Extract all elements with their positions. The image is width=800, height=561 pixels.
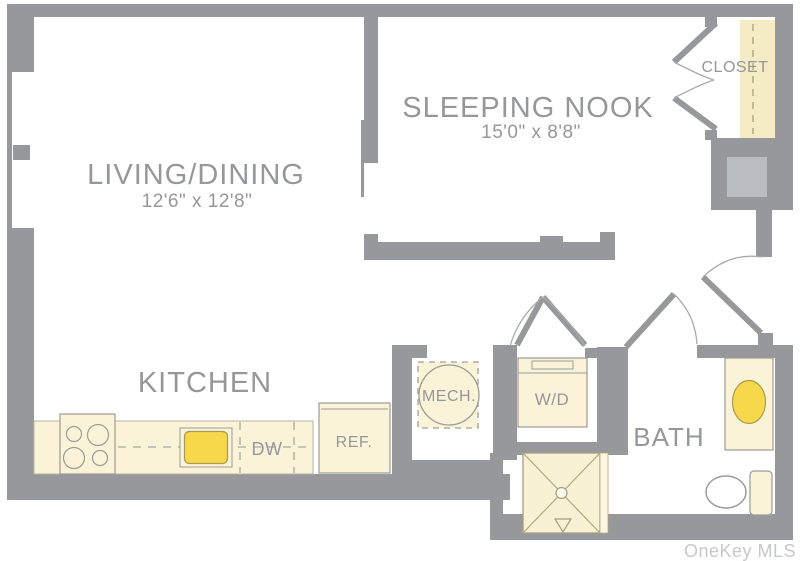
window-mullion <box>13 145 30 160</box>
wall-entry-upper-jamb <box>756 210 772 257</box>
toilet-tank <box>750 471 772 515</box>
toilet-bowl <box>706 476 746 508</box>
label-mech: MECH. <box>422 388 476 405</box>
wall-entry-lower-jamb <box>758 333 773 347</box>
label-refrigerator: REF. <box>336 434 373 451</box>
vanity-sink-basin <box>733 381 766 424</box>
wall-living-nook <box>364 17 378 163</box>
wd-door-leaf-right <box>543 297 585 345</box>
label-dishwasher: DW <box>252 439 283 459</box>
wall-right-upper <box>775 17 793 143</box>
closet-bifold-leaf-bottom <box>674 98 716 129</box>
closet-bifold-leaf-top <box>674 23 716 62</box>
floorplan-drawing: LIVING/DINING 12'6" x 12'8" SLEEPING NOO… <box>0 0 800 561</box>
label-living-dining: LIVING/DINING <box>87 159 305 191</box>
label-kitchen: KITCHEN <box>138 367 272 399</box>
watermark-onekey-mls: OneKey MLS <box>684 541 796 561</box>
wall-closet-jamb-bottom <box>705 130 717 140</box>
burner-small-tl <box>67 427 82 442</box>
wall-kitchen-bottom <box>7 474 510 500</box>
wall-nook-bottom-step <box>540 236 563 260</box>
shower-curb <box>600 453 608 533</box>
burner-large-tr <box>88 425 109 446</box>
wall-mech-bottom <box>412 460 493 474</box>
label-washer-dryer: W/D <box>535 390 570 409</box>
burner-large-bl <box>64 448 85 469</box>
bath-door-leaf <box>626 294 674 347</box>
wall-nook-bottom <box>367 242 615 260</box>
wall-nook-bottom-left-jamb <box>364 234 378 260</box>
label-closet: CLOSET <box>701 59 768 76</box>
wall-mech-left <box>392 345 412 474</box>
entry-door-leaf <box>703 277 761 333</box>
label-bath: BATH <box>633 422 704 452</box>
wall-wd-bath <box>597 347 628 455</box>
burner-small-br <box>93 451 108 466</box>
shower-drain <box>556 488 567 499</box>
wall-left-upper <box>7 4 34 72</box>
wall-living-nook-thin <box>361 120 364 197</box>
shower <box>523 453 608 533</box>
window-outer-line <box>7 72 12 228</box>
bath-door-arc <box>674 294 697 344</box>
dims-living-dining: 12'6" x 12'8" <box>142 191 253 212</box>
wall-right-lower <box>775 345 793 540</box>
shaft-square <box>727 157 767 197</box>
bath-fixtures <box>706 358 773 515</box>
closet-shelf <box>740 20 775 138</box>
kitchen-sink <box>185 432 228 464</box>
closet-arc-bottom <box>674 80 714 98</box>
wall-top <box>7 4 793 17</box>
floorplan-canvas: LIVING/DINING 12'6" x 12'8" SLEEPING NOO… <box>0 0 800 561</box>
wall-nook-bottom-endcap <box>600 232 615 260</box>
label-sleeping-nook: SLEEPING NOOK <box>402 92 654 124</box>
entry-door-arc <box>703 256 762 277</box>
wall-mech-top-stub <box>392 345 427 358</box>
dims-sleeping-nook: 15'0" x 8'8" <box>481 122 581 143</box>
wall-wd-top-stub <box>585 348 597 358</box>
wall-left-lower <box>7 228 34 500</box>
